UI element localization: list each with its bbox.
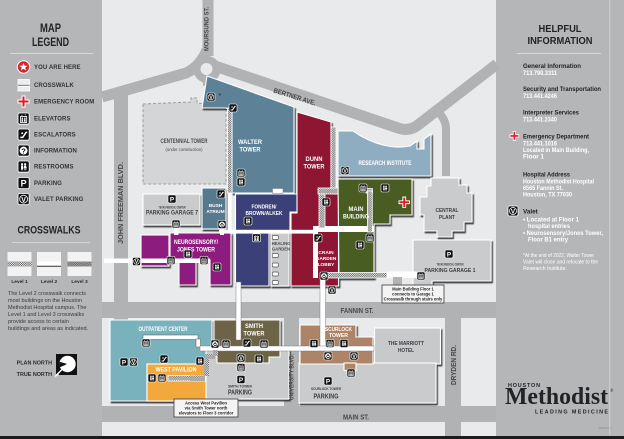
svg-text:BUSH: BUSH (209, 203, 223, 209)
svg-text:WEST PAVILION: WEST PAVILION (156, 368, 197, 374)
svg-text:BROWN/ALKEK: BROWN/ALKEK (246, 211, 283, 217)
svg-text:SMITH TOWER: SMITH TOWER (228, 384, 252, 389)
svg-text:EMERGENCY ROOM: EMERGENCY ROOM (34, 100, 94, 106)
svg-text:PLANT: PLANT (439, 215, 456, 221)
svg-text:713.790.3311: 713.790.3311 (523, 70, 557, 77)
svg-text:Floor 1: Floor 1 (523, 154, 544, 161)
svg-text:Level 1 and Level 3 crosswalks: Level 1 and Level 3 crosswalks (8, 312, 84, 318)
svg-text:Level 3: Level 3 (71, 279, 88, 285)
svg-text:BUILDING: BUILDING (343, 215, 369, 221)
svg-text:PARKING: PARKING (228, 390, 252, 397)
svg-text:JONES TOWER: JONES TOWER (177, 248, 216, 254)
svg-text:INFORMATION: INFORMATION (34, 149, 77, 155)
svg-text:LEADING MEDICINE: LEADING MEDICINE (535, 410, 608, 416)
svg-text:PLAN NORTH: PLAN NORTH (17, 361, 52, 367)
svg-text:®: ® (610, 387, 614, 393)
svg-text:SMITH: SMITH (245, 324, 263, 330)
svg-text:Hospital Address: Hospital Address (523, 172, 570, 179)
svg-text:ESCALATORS: ESCALATORS (34, 133, 76, 139)
svg-text:CENTRAL: CENTRAL (436, 208, 460, 214)
svg-text:CENTENNIAL TOWER: CENTENNIAL TOWER (161, 138, 208, 145)
svg-text:TOWER: TOWER (240, 148, 262, 154)
svg-text:ELEVATORS: ELEVATORS (34, 117, 71, 123)
svg-text:PARKING: PARKING (314, 394, 339, 401)
svg-text:hospital entries: hospital entries (528, 223, 570, 230)
svg-text:The Level 2 crosswalk connects: The Level 2 crosswalk connects (8, 291, 86, 297)
svg-text:WALTER: WALTER (238, 140, 263, 146)
svg-text:Security and Transportation: Security and Transportation (523, 86, 601, 93)
svg-text:CROSSWALKS: CROSSWALKS (18, 225, 81, 237)
svg-text:Houston, TX 77030: Houston, TX 77030 (523, 192, 572, 199)
svg-text:Level 1: Level 1 (11, 279, 28, 285)
svg-text:*At the end of 2022, Walter To: *At the end of 2022, Walter Tower (523, 253, 594, 259)
svg-text:Emergency Department: Emergency Department (523, 134, 590, 141)
svg-text:NEUROSENSORY/: NEUROSENSORY/ (174, 240, 218, 246)
svg-text:GARDEN: GARDEN (316, 256, 337, 262)
svg-text:OUTPATIENT CENTER: OUTPATIENT CENTER (139, 327, 189, 333)
svg-text:HOTEL: HOTEL (398, 348, 415, 354)
svg-text:Methodist: Methodist (505, 384, 608, 410)
svg-text:Floor B1 entry: Floor B1 entry (528, 237, 568, 244)
svg-text:JOHN FREEMAN BLVD.: JOHN FREEMAN BLVD. (116, 162, 125, 244)
svg-text:Interpreter Services: Interpreter Services (523, 110, 579, 117)
svg-text:GARDEN: GARDEN (272, 247, 290, 252)
svg-text:PARKING GARAGE 1: PARKING GARAGE 1 (425, 268, 477, 274)
svg-text:buildings and areas as indicat: buildings and areas as indicated. (8, 326, 89, 332)
svg-text:MAIN ST.: MAIN ST. (343, 415, 369, 422)
svg-text:ATRIUM: ATRIUM (206, 209, 224, 215)
svg-text:elevators to Floor 3 corridor: elevators to Floor 3 corridor (179, 411, 234, 416)
svg-text:PARKING GARAGE 7: PARKING GARAGE 7 (146, 211, 199, 217)
svg-text:YOU ARE HERE: YOU ARE HERE (34, 65, 81, 71)
svg-text:most buildings on the Houston: most buildings on the Houston (8, 298, 82, 304)
svg-text:PARKING: PARKING (34, 181, 62, 187)
svg-text:MAP: MAP (40, 21, 61, 35)
svg-text:SCURLOCK TOWER: SCURLOCK TOWER (311, 386, 341, 391)
svg-text:FONDREN/: FONDREN/ (252, 205, 277, 211)
svg-text:RESEARCH INSTITUTE: RESEARCH INSTITUTE (359, 161, 412, 167)
svg-text:TEXAS MEDICAL CENTER: TEXAS MEDICAL CENTER (159, 206, 186, 210)
svg-text:LEGEND: LEGEND (32, 35, 69, 49)
svg-text:INFORMATION: INFORMATION (528, 35, 593, 47)
svg-text:713.441.4246: 713.441.4246 (523, 93, 557, 100)
svg-text:LOBBY: LOBBY (318, 262, 336, 268)
svg-text:MAIN: MAIN (349, 207, 364, 213)
svg-text:*: * (219, 93, 222, 100)
svg-text:UNIVERSITY BLVD.: UNIVERSITY BLVD. (289, 354, 296, 400)
svg-text:General Information: General Information (523, 63, 581, 70)
svg-text:VALET PARKING: VALET PARKING (34, 197, 84, 203)
svg-text:Crosswalk through stairs only: Crosswalk through stairs only (384, 297, 443, 302)
svg-text:HEALING: HEALING (272, 241, 291, 246)
svg-text:RESTROOMS: RESTROOMS (34, 165, 74, 171)
svg-text:713.441.2340: 713.441.2340 (523, 117, 557, 124)
svg-text:DUNN: DUNN (306, 157, 323, 163)
svg-text:TEXAS MEDICAL CENTER: TEXAS MEDICAL CENTER (437, 263, 464, 267)
svg-text:HELPFUL: HELPFUL (539, 23, 583, 35)
svg-text:TOWER: TOWER (304, 165, 326, 171)
svg-text:provide access to certain: provide access to certain (8, 319, 69, 325)
svg-text:Methodist Hospital campus. The: Methodist Hospital campus. The (8, 305, 86, 311)
svg-text:TRUE NORTH: TRUE NORTH (17, 372, 52, 378)
svg-text:TOWER: TOWER (244, 332, 266, 338)
svg-text:THE MARRIOTT: THE MARRIOTT (388, 341, 425, 347)
svg-text:CROSSWALK: CROSSWALK (34, 83, 74, 89)
svg-text:Level 2: Level 2 (41, 279, 58, 285)
svg-text:FANNIN ST.: FANNIN ST. (341, 308, 374, 315)
svg-text:Valet will close and relocate: Valet will close and relocate to the (523, 260, 598, 266)
svg-text:MOURSUND ST.: MOURSUND ST. (204, 7, 211, 51)
svg-text:TOWER: TOWER (329, 333, 348, 339)
svg-text:Research Institute.: Research Institute. (523, 266, 567, 272)
svg-text:Valet: Valet (523, 209, 539, 216)
svg-text:DRYDEN RD.: DRYDEN RD. (451, 345, 458, 385)
svg-text:(under construction): (under construction) (166, 147, 203, 152)
svg-text:CRAIN: CRAIN (318, 250, 334, 256)
